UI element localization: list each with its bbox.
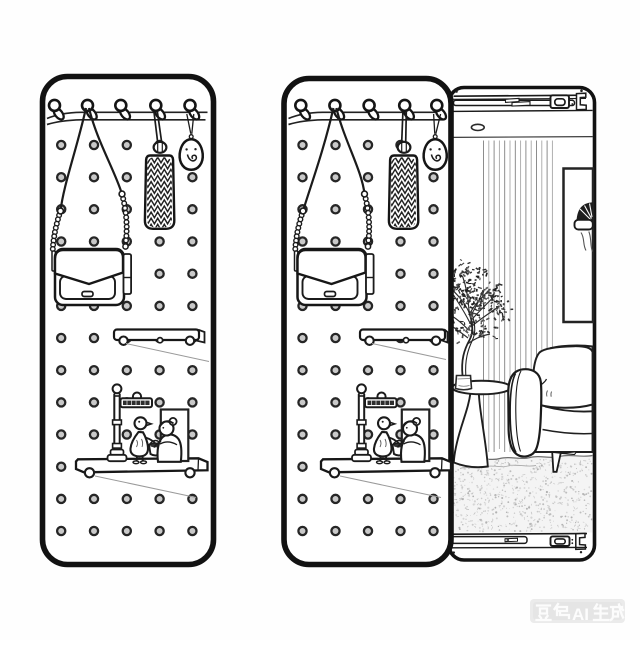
svg-text:AI: AI (572, 605, 589, 624)
